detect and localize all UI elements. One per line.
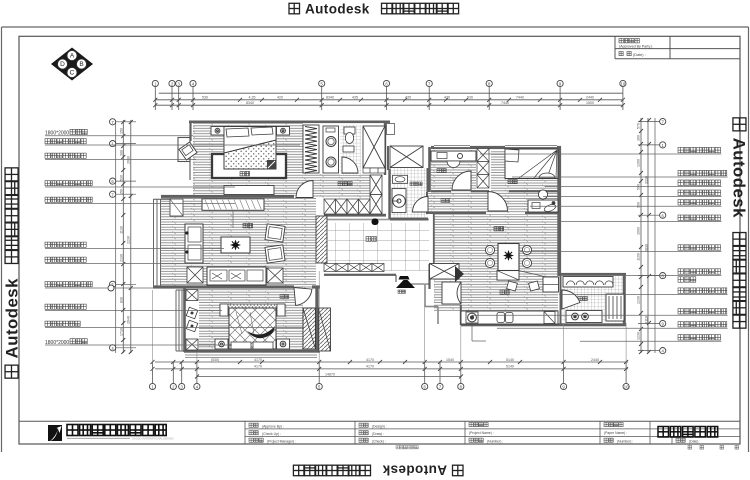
svg-text:10: 10: [624, 385, 629, 390]
svg-text:A: A: [70, 53, 75, 60]
svg-text:420: 420: [444, 96, 450, 100]
svg-text:300: 300: [120, 150, 124, 156]
svg-text:1230: 1230: [637, 332, 641, 340]
svg-text:1100: 1100: [637, 253, 641, 261]
svg-text:5140: 5140: [506, 365, 514, 369]
svg-text:(Project Name) :: (Project Name) :: [469, 431, 494, 435]
svg-text:Autodesk: Autodesk: [305, 1, 370, 16]
svg-text:2440: 2440: [591, 358, 599, 362]
svg-text:1260: 1260: [637, 159, 641, 167]
svg-text:360: 360: [637, 135, 641, 141]
svg-text:4170: 4170: [366, 358, 374, 362]
svg-text:(Approved By Party:): (Approved By Party:): [619, 44, 652, 48]
svg-text:C: C: [70, 70, 75, 77]
svg-text:1130: 1130: [120, 226, 124, 234]
svg-text:530: 530: [202, 96, 208, 100]
svg-text:4,35: 4,35: [249, 96, 256, 100]
svg-text:4170: 4170: [254, 358, 262, 362]
svg-text:(Project Manager) :: (Project Manager) :: [267, 439, 296, 443]
svg-text:(Check Up) :: (Check Up) :: [262, 432, 281, 436]
svg-text:530: 530: [120, 175, 124, 181]
svg-text:2230: 2230: [127, 236, 131, 244]
svg-text:3110: 3110: [645, 316, 649, 324]
svg-text:Autodesk: Autodesk: [730, 138, 749, 218]
svg-text:7440: 7440: [501, 101, 509, 105]
svg-text:830: 830: [120, 297, 124, 303]
svg-text:435: 435: [352, 96, 358, 100]
svg-text:8340: 8340: [326, 96, 334, 100]
svg-text:(Approve By) :: (Approve By) :: [262, 424, 284, 428]
svg-text:GAODU INTERNATIONAL DESIGN: GAODU INTERNATIONAL DESIGN: [132, 437, 173, 441]
svg-text:(Paper Name) :: (Paper Name) :: [604, 431, 627, 435]
svg-text:5140: 5140: [506, 358, 514, 362]
svg-text:14870: 14870: [325, 372, 335, 376]
svg-text:150: 150: [120, 128, 124, 134]
svg-text:1600: 1600: [637, 227, 641, 235]
svg-text:2130: 2130: [120, 254, 124, 262]
svg-text:1540: 1540: [446, 358, 454, 362]
svg-text:4170: 4170: [254, 365, 262, 369]
svg-text:7440: 7440: [516, 96, 524, 100]
svg-text:1710: 1710: [120, 328, 124, 336]
svg-text:Autodesk: Autodesk: [382, 463, 447, 478]
svg-text:530: 530: [467, 96, 473, 100]
svg-text:(Draw) :: (Draw) :: [372, 432, 384, 436]
svg-text:(Date) :: (Date) :: [633, 53, 646, 57]
svg-text:4170: 4170: [366, 365, 374, 369]
svg-text:960: 960: [637, 202, 641, 208]
svg-text:10: 10: [621, 82, 626, 87]
svg-text:8340: 8340: [246, 101, 254, 105]
svg-text:2630: 2630: [127, 156, 131, 164]
svg-text:420: 420: [277, 96, 283, 100]
svg-text:D: D: [60, 61, 65, 68]
svg-text:B: B: [79, 61, 83, 68]
svg-text:(530): (530): [211, 358, 219, 362]
svg-text:(Check) :: (Check) :: [372, 439, 386, 443]
svg-text:2440: 2440: [586, 96, 594, 100]
svg-text:Autodesk: Autodesk: [2, 278, 21, 358]
svg-text:1500: 1500: [586, 101, 594, 105]
svg-text:435: 435: [405, 96, 411, 100]
svg-text:570: 570: [637, 123, 641, 129]
svg-text:560: 560: [637, 184, 641, 190]
svg-text:(Number) :: (Number) :: [617, 439, 633, 443]
svg-text:2830: 2830: [645, 244, 649, 252]
svg-text:2640: 2640: [127, 316, 131, 324]
svg-text:2230: 2230: [637, 296, 641, 304]
svg-text:(Number) :: (Number) :: [487, 439, 503, 443]
svg-text:(Date) :: (Date) :: [689, 439, 700, 443]
svg-text:(Design) :: (Design) :: [372, 424, 387, 428]
